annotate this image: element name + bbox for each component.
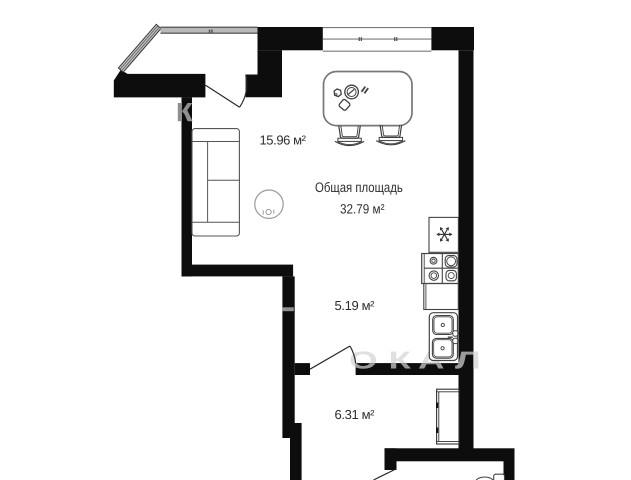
- svg-text:5.19 м²: 5.19 м²: [335, 298, 376, 313]
- svg-text:15.96 м²: 15.96 м²: [260, 133, 307, 148]
- svg-text:6.31 м²: 6.31 м²: [335, 407, 376, 422]
- svg-text:Общая площадь: Общая площадь: [315, 180, 403, 195]
- svg-text:32.79 м²: 32.79 м²: [340, 202, 385, 217]
